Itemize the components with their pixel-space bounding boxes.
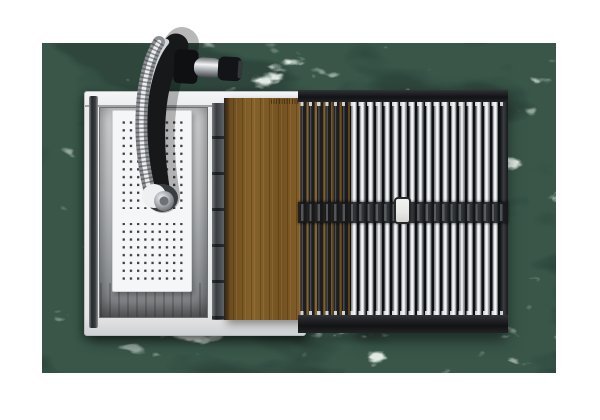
roll-up-drying-rack bbox=[298, 90, 508, 333]
brand-stamp bbox=[271, 99, 298, 104]
ledge-track bbox=[212, 103, 224, 320]
product-photo bbox=[0, 0, 600, 420]
rack-top-strap bbox=[298, 90, 508, 102]
sink-left-channel bbox=[89, 96, 98, 328]
colander-holes bbox=[113, 111, 193, 293]
colander-basket bbox=[112, 110, 192, 292]
rack-center-tag bbox=[394, 197, 411, 224]
board-left-edge bbox=[224, 98, 230, 320]
rack-bottom-strap bbox=[298, 315, 508, 333]
